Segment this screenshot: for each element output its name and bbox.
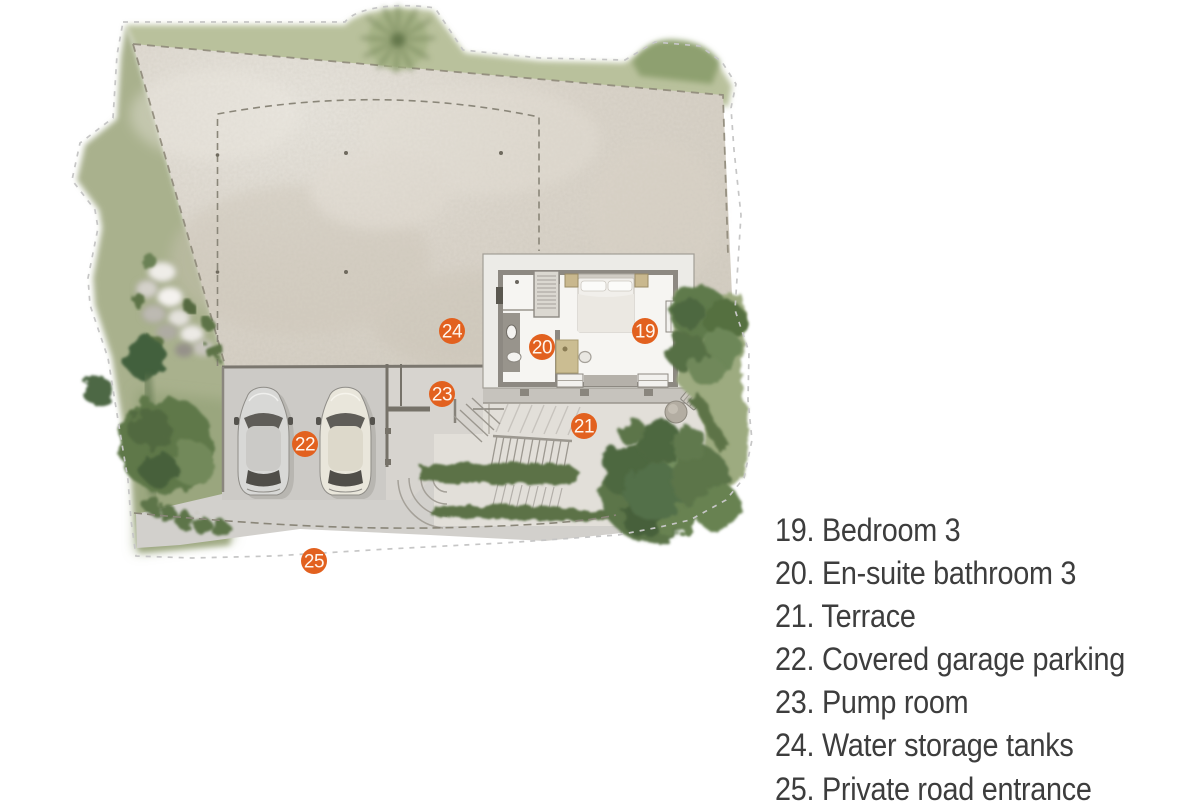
svg-text:20: 20: [532, 338, 552, 359]
svg-text:24: 24: [442, 322, 463, 343]
svg-text:23: 23: [432, 385, 452, 406]
svg-text:22: 22: [295, 435, 315, 456]
svg-text:19: 19: [635, 322, 655, 343]
svg-text:21: 21: [574, 417, 594, 438]
svg-text:25: 25: [304, 552, 324, 573]
